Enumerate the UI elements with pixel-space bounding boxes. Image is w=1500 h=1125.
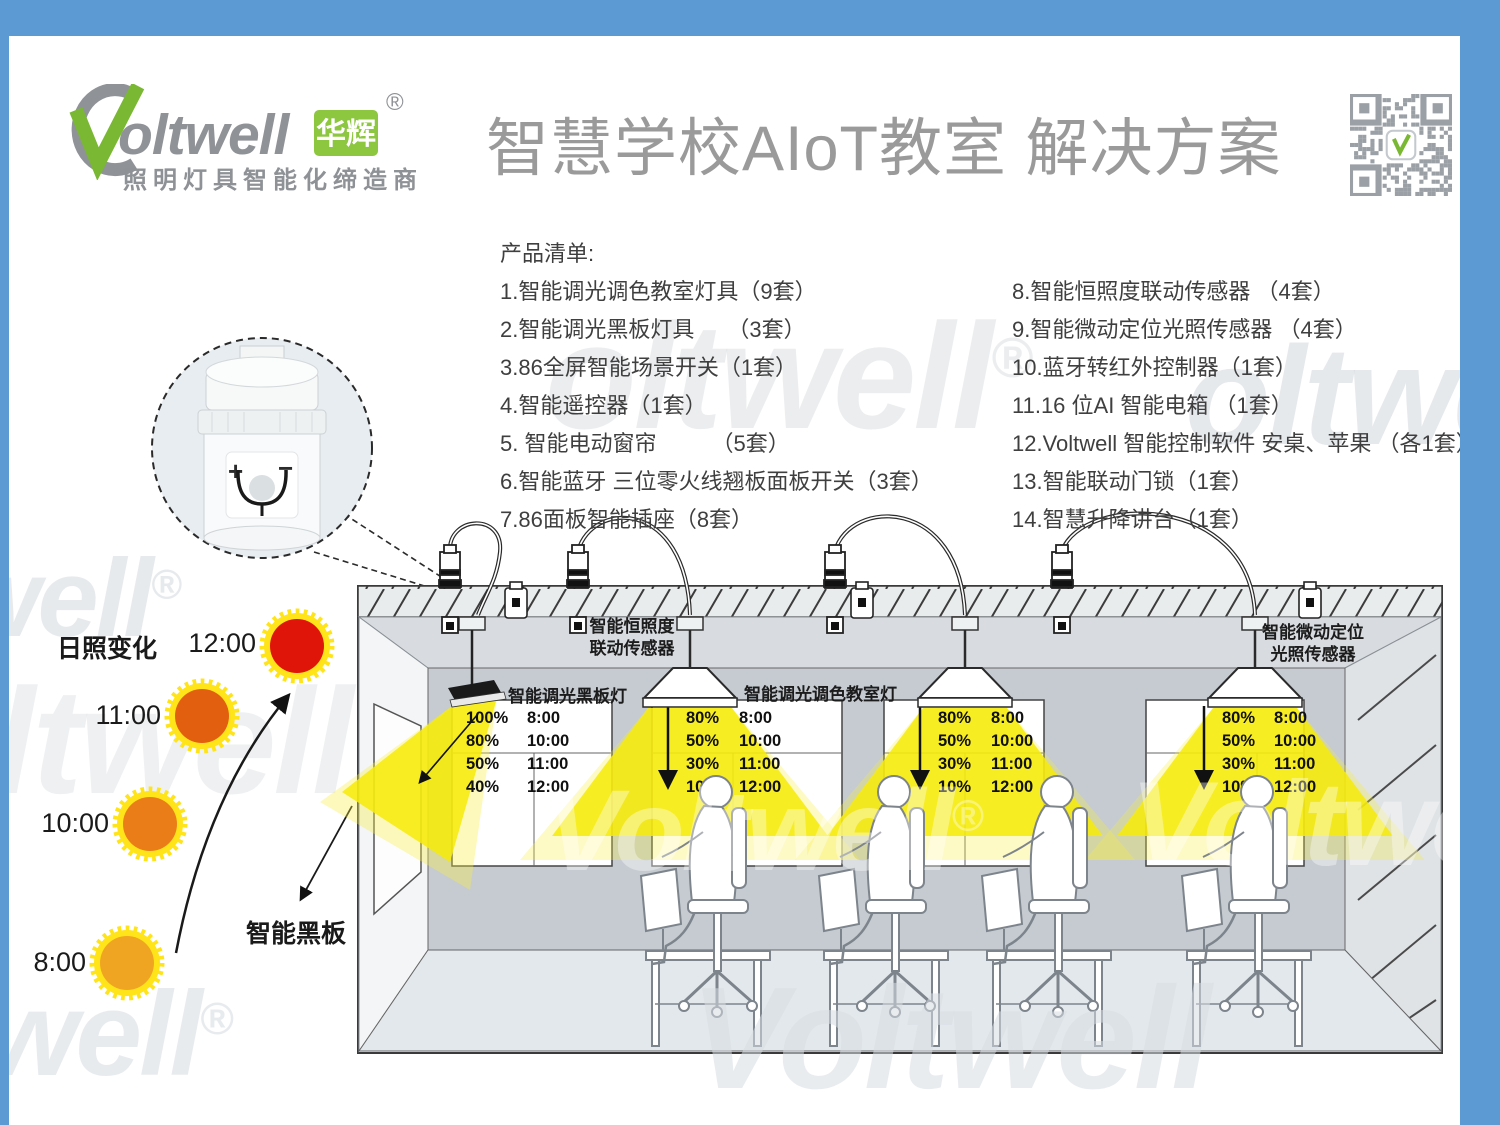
classroom-light-label: 智能调光调色教室灯 <box>744 684 897 704</box>
product-item: 7.86面板智能插座（8套） <box>500 501 933 539</box>
svg-text:100%: 100% <box>466 709 509 727</box>
product-item: 9.智能微动定位光照传感器 （4套） <box>1012 311 1478 349</box>
sun-time: 10:00 <box>41 808 109 838</box>
svg-text:10:00: 10:00 <box>991 732 1033 750</box>
product-item: 1.智能调光调色教室灯具（9套） <box>500 273 933 311</box>
product-item: 5. 智能电动窗帘 （5套） <box>500 425 933 463</box>
right-border <box>1460 36 1500 1125</box>
classroom: 100% 8:00 80% 10:00 50% 11:00 40% 12:00 … <box>320 513 1442 1053</box>
svg-text:30%: 30% <box>1222 755 1255 773</box>
svg-text:10:00: 10:00 <box>527 732 569 750</box>
product-list-right: 8.智能恒照度联动传感器 （4套） 9.智能微动定位光照传感器 （4套） 10.… <box>1012 273 1478 539</box>
sun-time: 11:00 <box>95 700 161 730</box>
plus-mark: + <box>228 456 243 486</box>
svg-text:40%: 40% <box>466 778 499 796</box>
sun-10-00: 10:00 <box>41 791 183 857</box>
product-item: 3.86全屏智能场景开关（1套） <box>500 349 933 387</box>
sun-12-00: 12:00 <box>188 613 330 679</box>
illuminance-sensor-label: 智能恒照度 <box>590 616 676 636</box>
page-title: 智慧学校AIoT教室 解决方案 <box>486 98 1282 189</box>
svg-text:8:00: 8:00 <box>527 709 560 727</box>
svg-text:11:00: 11:00 <box>739 755 780 773</box>
svg-text:10%: 10% <box>938 778 971 796</box>
svg-text:8:00: 8:00 <box>739 709 772 727</box>
svg-text:8:00: 8:00 <box>1274 709 1307 727</box>
illuminance-sensor-label: 联动传感器 <box>590 638 676 658</box>
brand-tagline: 照明灯具智能化缔造商 <box>123 160 423 195</box>
svg-text:12:00: 12:00 <box>1274 778 1316 796</box>
qr-code <box>1350 94 1452 196</box>
svg-text:50%: 50% <box>938 732 971 750</box>
svg-text:50%: 50% <box>1222 732 1255 750</box>
svg-text:10:00: 10:00 <box>739 732 781 750</box>
svg-text:80%: 80% <box>938 709 971 727</box>
product-list-left: 产品清单: 1.智能调光调色教室灯具（9套） 2.智能调光黑板灯具 （3套） 3… <box>500 235 933 539</box>
positioning-sensor-label: 智能微动定位 <box>1262 622 1364 642</box>
sensor-dial-icon <box>249 475 275 501</box>
svg-text:12:00: 12:00 <box>991 778 1033 796</box>
svg-text:8:00: 8:00 <box>991 709 1024 727</box>
brand-name: oltwell <box>118 103 291 167</box>
sunlight-label: 日照变化 <box>57 634 157 663</box>
qr-center-logo <box>1387 131 1416 160</box>
svg-text:30%: 30% <box>686 755 719 773</box>
blackboard-pointer-arrow <box>301 806 352 899</box>
page: oltwell® oltwe well® oltwell well® Voltw… <box>0 0 1500 1125</box>
svg-text:10:00: 10:00 <box>1274 732 1316 750</box>
registered-mark: ® <box>386 89 404 116</box>
blackboard-light-label: 智能调光黑板灯 <box>508 686 627 706</box>
svg-text:80%: 80% <box>686 709 719 727</box>
sensor-magnifier: + − <box>152 338 446 592</box>
svg-text:80%: 80% <box>466 732 499 750</box>
sunlight-section: 日照变化 智能黑板 12:00 11:00 10:00 <box>33 613 352 996</box>
product-item: 13.智能联动门锁（1套） <box>1012 463 1478 501</box>
svg-text:11:00: 11:00 <box>1274 755 1315 773</box>
product-item: 11.16 位AI 智能电箱 （1套） <box>1012 387 1478 425</box>
top-bar <box>0 0 1500 36</box>
product-item: 14.智慧升降讲台（1套） <box>1012 501 1478 539</box>
svg-text:30%: 30% <box>938 755 971 773</box>
sun-time: 12:00 <box>188 628 256 658</box>
product-item: 10.蓝牙转红外控制器（1套） <box>1012 349 1478 387</box>
light-sensor-photo: + − <box>198 346 326 550</box>
product-list-heading: 产品清单: <box>500 235 933 273</box>
sun-8-00: 8:00 <box>33 930 160 996</box>
blackboard-label: 智能黑板 <box>246 919 346 948</box>
sun-time: 8:00 <box>33 947 86 977</box>
product-item: 12.Voltwell 智能控制软件 安桌、苹果 （各1套） <box>1012 425 1478 463</box>
svg-text:50%: 50% <box>686 732 719 750</box>
product-item: 4.智能遥控器（1套） <box>500 387 933 425</box>
brand-name-cn: 华辉 <box>316 118 376 151</box>
svg-text:50%: 50% <box>466 755 499 773</box>
svg-text:11:00: 11:00 <box>527 755 568 773</box>
sun-11-00: 11:00 <box>95 683 235 749</box>
svg-text:80%: 80% <box>1222 709 1255 727</box>
svg-text:11:00: 11:00 <box>991 755 1032 773</box>
left-border <box>0 36 9 1125</box>
svg-text:12:00: 12:00 <box>739 778 781 796</box>
product-item: 2.智能调光黑板灯具 （3套） <box>500 311 933 349</box>
positioning-sensor-label: 光照传感器 <box>1270 644 1357 664</box>
product-item: 6.智能蓝牙 三位零火线翘板面板开关（3套） <box>500 463 933 501</box>
product-item: 8.智能恒照度联动传感器 （4套） <box>1012 273 1478 311</box>
svg-text:12:00: 12:00 <box>527 778 569 796</box>
